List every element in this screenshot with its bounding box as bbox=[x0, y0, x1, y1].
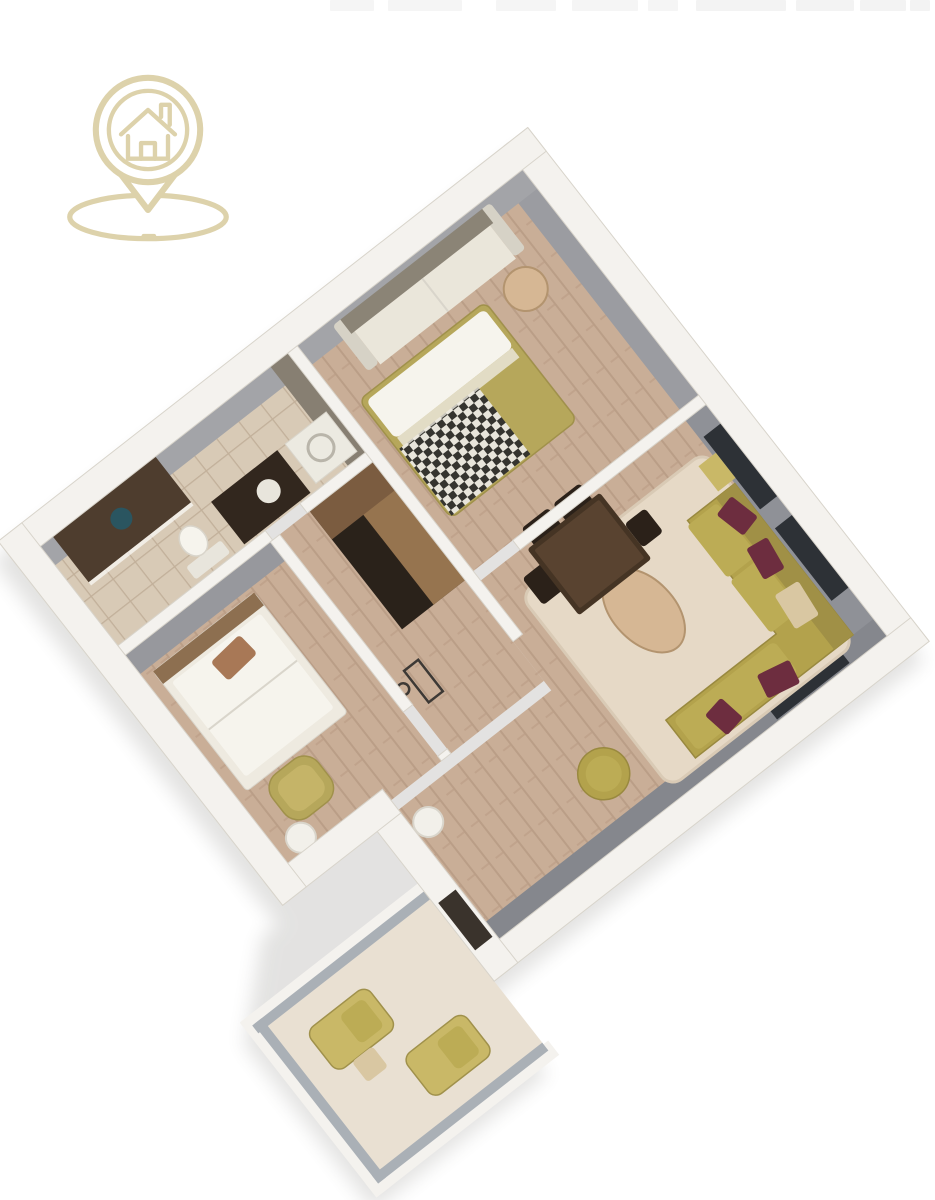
floor-plan-render: 3D isometric apartment floor plan bbox=[0, 0, 935, 1200]
page: House location pin logo 3D isometric apa… bbox=[0, 0, 935, 1200]
